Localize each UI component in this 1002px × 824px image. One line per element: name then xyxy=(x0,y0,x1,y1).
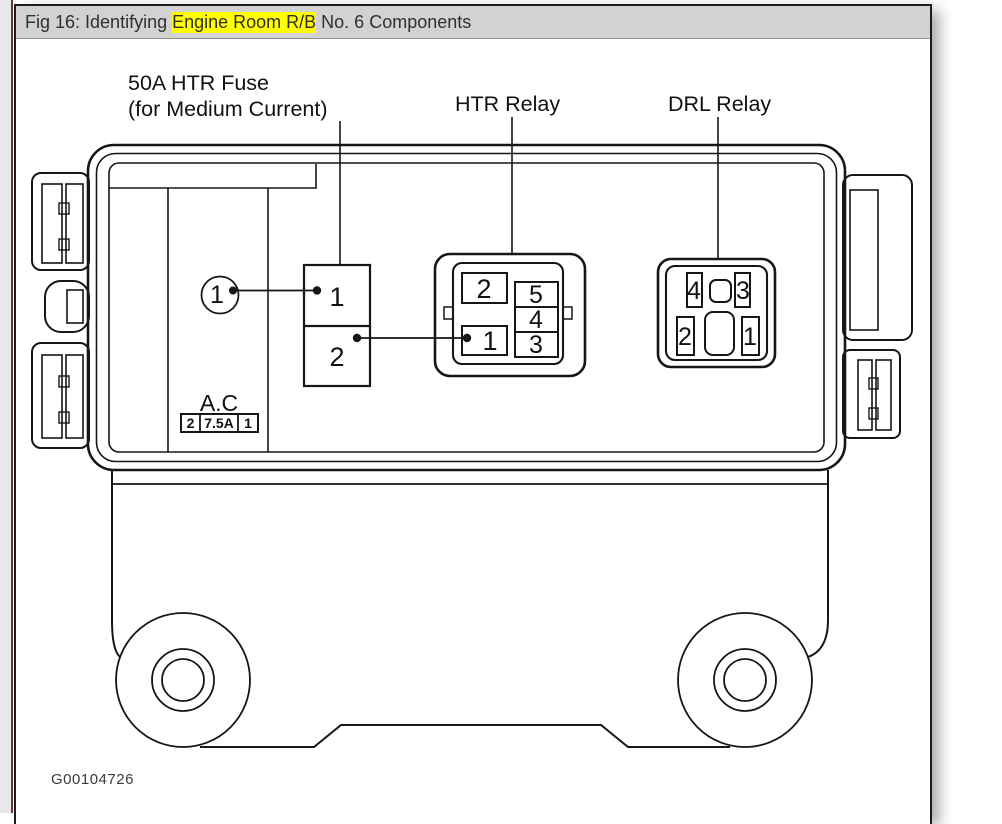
htr-pin-2: 2 xyxy=(476,274,491,304)
htr-pin-5: 5 xyxy=(529,281,543,309)
htr-relay-connector: 2 1 5 4 3 xyxy=(435,254,585,376)
htr-pin-1-dot xyxy=(463,334,471,342)
drl-pin-3: 3 xyxy=(736,277,750,305)
left-tab-bottom xyxy=(32,343,89,448)
fuse-cell-2: 2 xyxy=(329,342,344,372)
left-tab-top xyxy=(32,173,89,270)
right-tab-top-slot xyxy=(850,190,878,330)
left-tab-bottom-bridge2 xyxy=(59,412,69,423)
drl-pin-2: 2 xyxy=(678,323,692,351)
right-tab-bottom xyxy=(843,350,900,438)
ac-cell-2: 2 xyxy=(187,415,195,431)
ear-left-hole xyxy=(162,659,204,701)
ac-label: A.C xyxy=(200,390,238,416)
left-tab-top-bridge2 xyxy=(59,239,69,250)
left-tab-top-bar2 xyxy=(66,184,83,263)
bracket-left-edge xyxy=(112,470,120,657)
drl-center-pin-bottom xyxy=(705,312,734,355)
drl-center-pin-top xyxy=(710,280,731,302)
ac-cell-1: 1 xyxy=(244,415,252,431)
drl-relay-connector: 4 3 2 1 xyxy=(658,259,775,367)
drl-pin-4: 4 xyxy=(687,277,701,305)
mounting-ear-left xyxy=(116,613,250,747)
fuse-box-outline xyxy=(88,145,845,470)
left-connector-tabs xyxy=(32,173,89,448)
left-tab-bottom-bar2 xyxy=(66,355,83,438)
left-tab-top-bridge1 xyxy=(59,203,69,214)
htr-pin-4: 4 xyxy=(529,306,543,334)
fuse-label-line2: (for Medium Current) xyxy=(128,97,328,121)
left-tab-bottom-bridge1 xyxy=(59,376,69,387)
left-tab-bottom-bar1 xyxy=(42,355,62,438)
fuse-label-line1: 50A HTR Fuse xyxy=(128,71,269,95)
htr-relay-label: HTR Relay xyxy=(455,92,560,116)
bracket-right-edge xyxy=(808,470,828,657)
htr-pin-1: 1 xyxy=(482,326,497,356)
page: { "window": { "title_prefix": "Fig 16: I… xyxy=(0,0,1002,813)
left-tab-top-outline xyxy=(32,173,89,270)
htr-fuse-block: 1 2 xyxy=(304,265,463,386)
drl-pin-1: 1 xyxy=(743,323,757,351)
ear-left-outer xyxy=(116,613,250,747)
box-outer-edge xyxy=(88,145,845,470)
fuse2-dot xyxy=(353,334,361,342)
drl-relay-label: DRL Relay xyxy=(668,92,771,116)
fuse-pin-dot xyxy=(313,286,321,294)
left-tab-middle-bar xyxy=(67,290,83,323)
right-connector-tabs xyxy=(843,175,912,438)
callout-number: 1 xyxy=(210,281,224,309)
interior-shelf-line xyxy=(109,164,316,188)
ac-cell-75a: 7.5A xyxy=(204,415,234,431)
component-labels: 50A HTR Fuse (for Medium Current) HTR Re… xyxy=(128,71,771,121)
ac-fuse-block: A.C 2 7.5A 1 xyxy=(181,390,258,432)
bracket-bottom-edge xyxy=(200,725,730,747)
left-tab-top-bar1 xyxy=(42,184,62,263)
fuse-box-diagram: 50A HTR Fuse (for Medium Current) HTR Re… xyxy=(0,0,1002,813)
ear-right-hole xyxy=(724,659,766,701)
leader-lines xyxy=(340,117,718,265)
htr-conn-tab-left xyxy=(444,307,453,319)
callout-dot xyxy=(229,287,237,295)
fuse-cell-1: 1 xyxy=(329,282,344,312)
left-tab-bottom-outline xyxy=(32,343,89,448)
left-tab-middle xyxy=(45,281,89,332)
ear-right-outer xyxy=(678,613,812,747)
right-tab-top xyxy=(843,175,912,340)
htr-conn-tab-right xyxy=(563,307,572,319)
htr-pin-3: 3 xyxy=(529,331,543,359)
mounting-bracket xyxy=(112,470,828,747)
mounting-ear-right xyxy=(678,613,812,747)
